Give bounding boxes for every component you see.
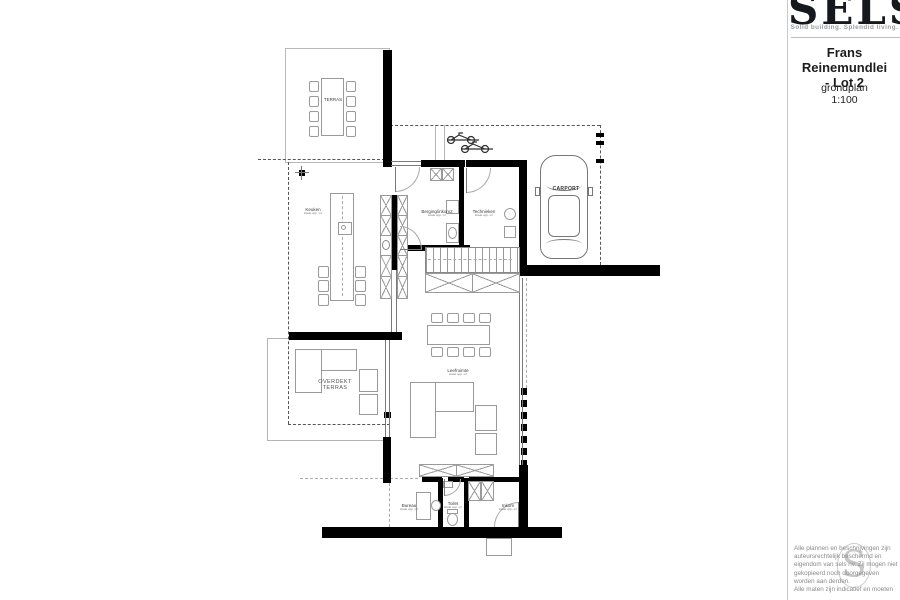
glass-wall [522,278,523,465]
door-arc [466,168,491,193]
washing-machine-drum [382,240,390,250]
car-rear-window [546,239,582,249]
door-arc [395,167,420,192]
dashed-line [300,478,418,479]
room-area: totale opp. m² [499,508,517,511]
path-line [435,125,436,161]
dashed-line [258,159,385,160]
room-area: totale opp. m² [421,214,452,217]
cabinet [380,276,392,299]
gate-tick [596,133,604,137]
room-label-inkom: Inkom totale opp. m² [499,503,517,512]
window [389,340,390,437]
chair [346,81,356,92]
plan-scale: 1:100 [788,94,900,106]
dashed-line [389,483,390,527]
cabinet [397,195,408,216]
low-cabinet [419,464,457,477]
entrance-step [486,538,512,556]
window [391,161,421,162]
sofa-chaise [410,382,436,438]
chair [447,347,459,357]
chair [463,313,475,323]
wall-segment [289,332,402,340]
car [538,155,590,259]
wall-segment [421,160,465,167]
lounge-chair [359,394,378,415]
window [391,165,421,166]
door-leaf [518,502,519,527]
desk [416,492,431,520]
car-mirror [535,187,540,196]
cabinet [380,195,392,216]
chair [447,313,459,323]
low-cabinet [456,464,494,477]
side-unit [475,405,497,431]
plan-type: grondplan [788,82,900,94]
staircase [425,247,520,273]
dashed-line [390,125,600,126]
dashed-line [526,278,527,388]
dining-table [427,325,490,345]
door-arc [444,479,461,496]
room-label-overdekt-terras: OVERDEKT TERRAS [318,379,351,392]
plot-line [267,338,268,440]
room-area: totale opp. m² [447,373,468,376]
room-area: totale opp. m² [473,214,496,217]
door-leaf [400,249,422,250]
cabinet [430,168,442,181]
chair [355,280,366,292]
column-marker [301,166,302,180]
desk-chair [431,500,441,511]
room-name: TERRAS [318,385,351,391]
chair [346,96,356,107]
room-name: CARPORT [553,187,580,193]
column-marker [295,172,309,173]
chair [355,294,366,306]
wall-segment [383,437,391,483]
plot-line [267,440,390,441]
chair [463,347,475,357]
dashed-line [288,424,390,425]
window [385,340,386,437]
chair [346,126,356,137]
column-marker [299,170,305,176]
chair [431,313,443,323]
technical-unit [504,226,516,238]
disclaimer-line: gekopieerd noch doorgegeven [794,570,898,578]
room-label-leefruimte: Leefruimte totale opp. m² [447,368,468,377]
bicycles-icon [442,132,498,158]
under-stair-cabinet [425,273,473,293]
room-area: totale opp. m² [400,508,418,511]
room-label-keuken: Keuken totale opp. m² [304,207,322,216]
disclaimer-line: worden aan derden. [794,578,898,586]
chair [309,81,319,92]
island-centerline [342,196,343,296]
dashed-line [600,125,601,265]
room-area: totale opp. m² [444,506,462,509]
boiler [504,208,516,220]
room-name: TERRAS [324,97,342,102]
wardrobe [468,481,481,501]
door-leaf [395,167,396,192]
dashed-line [288,162,289,424]
toilet-bowl [447,513,458,526]
drawing-sheet: TERRAS Keuken totale opp. m² Berging/ink… [0,0,900,600]
cabinet [380,255,392,277]
chair [309,96,319,107]
cabinet [442,168,454,181]
gate-tick [596,141,604,145]
brand-tagline: Solid building. Splendid living. [788,24,900,31]
chair [355,266,366,278]
chair [431,347,443,357]
title-block: SELS Solid building. Splendid living. Fr… [787,0,900,600]
room-label-carport: CARPORT [553,187,580,193]
chair [479,347,491,357]
disclaimer-line: Alle maten zijn indicatief en moeten [794,586,898,594]
lounge-chair [359,369,378,392]
wall-segment [383,50,392,167]
room-label-terras: TERRAS [324,97,342,102]
disclaimer-line: eigendom van sels nv. Zij mogen niet [794,561,898,569]
utility-sink-basin [448,227,457,239]
room-label-berging: Berging/inkom2 totale opp. m² [421,209,452,218]
plot-line [267,338,290,339]
chair [318,280,329,292]
disclaimer-line: auteursrechtelijk beschermd en [794,553,898,561]
door-leaf [444,479,445,496]
chair [309,111,319,122]
chair [479,313,491,323]
wardrobe [481,481,494,501]
cooktop-burner [341,225,346,230]
glass-wall [519,278,520,465]
wall-segment [519,160,527,276]
room-label-toilet: Toilet totale opp. m² [444,501,462,510]
car-mirror [588,187,593,196]
project-title-line1: Frans Reinemundlei [788,45,900,75]
chair [309,126,319,137]
door-arc [400,226,422,250]
room-label-bureau: Bureau totale opp. m² [400,503,418,512]
terrace-table [321,78,344,136]
cabinet [380,215,392,236]
wall-segment [466,160,520,167]
door-leaf [466,168,467,193]
chair [318,266,329,278]
wall-segment [322,527,562,538]
wall-segment [519,265,660,276]
wall-segment [459,167,464,245]
chair [318,294,329,306]
car-roof [548,195,580,237]
cabinet [397,255,408,277]
side-unit [475,433,497,455]
disclaimer-line: Alle plannen en beschrijvingen zijn [794,545,898,553]
wall-segment [519,465,528,530]
stair-walkline [428,259,512,260]
cabinet [397,276,408,299]
chair [346,111,356,122]
under-stair-cabinet [472,273,520,293]
wall-segment [422,477,442,482]
room-label-technieken: Technieken totale opp. m² [473,209,496,218]
divider [791,37,900,38]
room-area: totale opp. m² [304,212,322,215]
gate-tick [596,159,604,163]
disclaimer: Alle plannen en beschrijvingen zijn aute… [794,545,898,594]
